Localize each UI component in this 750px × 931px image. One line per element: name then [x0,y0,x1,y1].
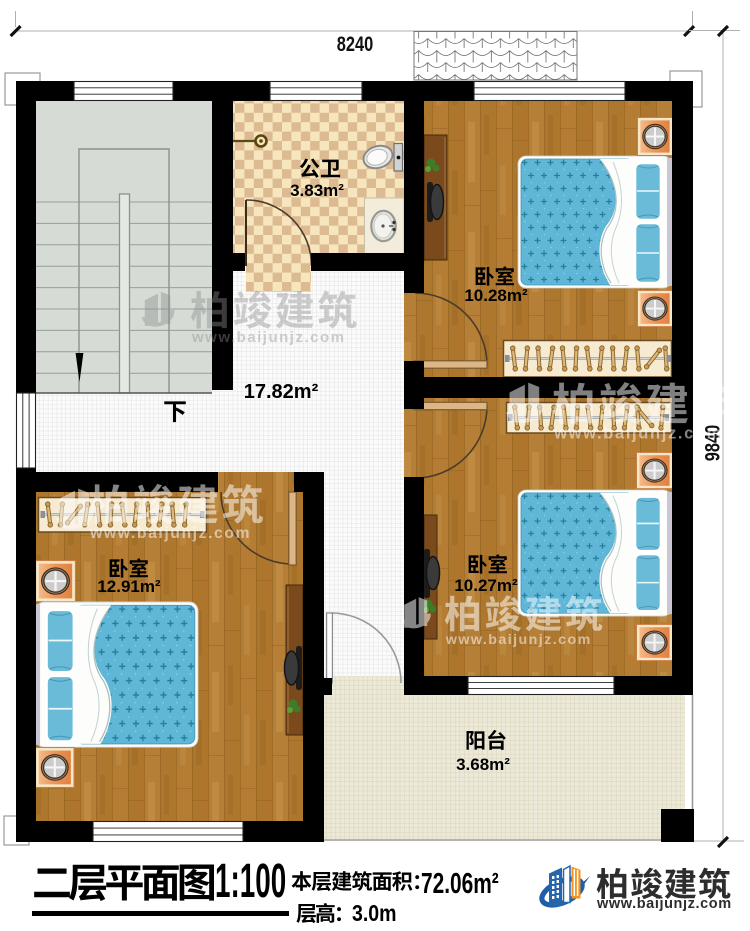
svg-text:3.68m²: 3.68m² [456,755,510,774]
svg-text:www.baijunjz.com: www.baijunjz.com [596,896,732,912]
svg-text:3.0m: 3.0m [352,901,397,927]
svg-text:10.28m²: 10.28m² [464,286,528,305]
svg-text:12.91m²: 12.91m² [97,577,161,596]
svg-text:17.82m²: 17.82m² [244,381,319,403]
svg-text:8240: 8240 [337,32,373,55]
svg-text:10.27m²: 10.27m² [454,576,518,595]
svg-text:3.83m²: 3.83m² [290,181,344,200]
svg-text:1:100: 1:100 [215,854,286,908]
svg-text:72.06m²: 72.06m² [421,868,499,900]
